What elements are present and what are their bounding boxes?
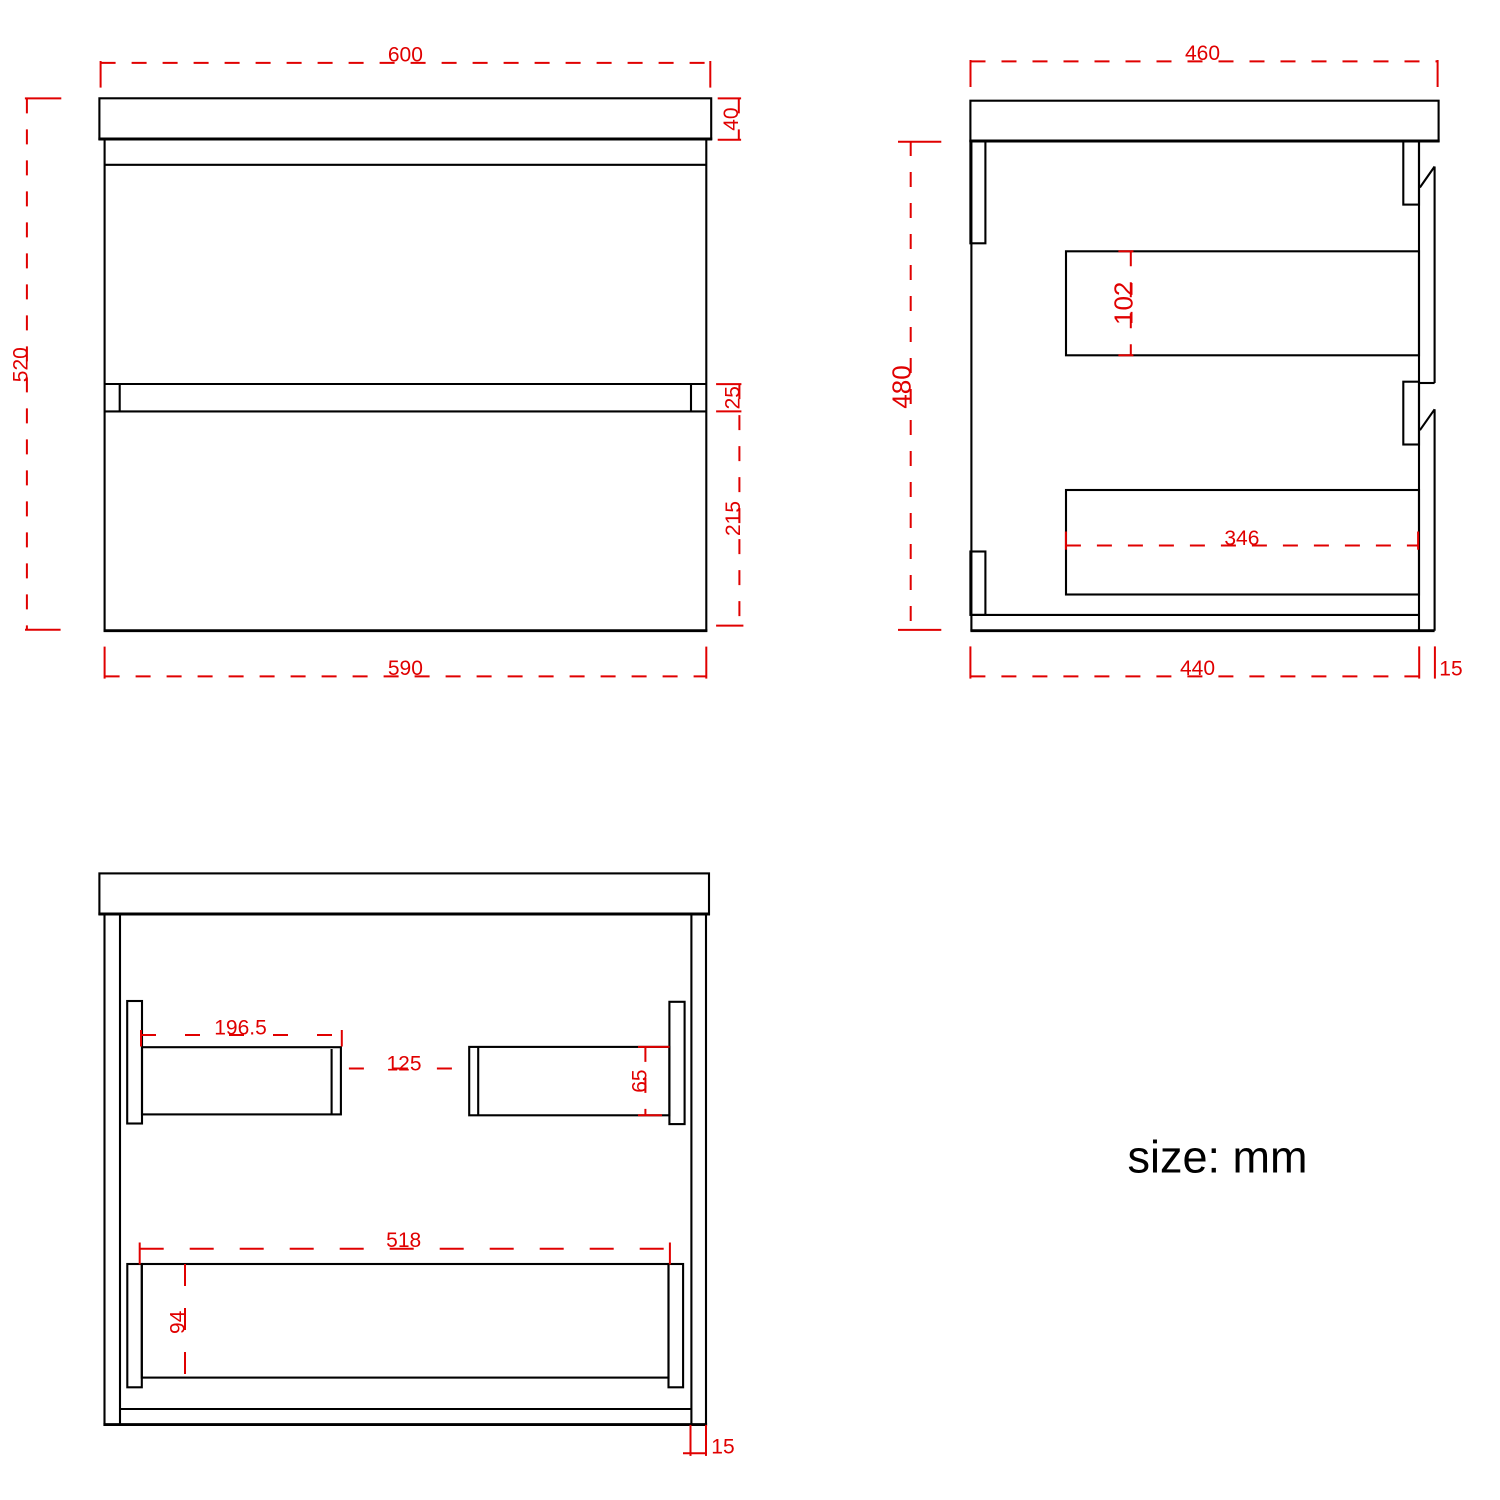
svg-text:102: 102 [1109,282,1139,325]
svg-text:518: 518 [386,1229,421,1252]
svg-text:346: 346 [1224,527,1259,550]
svg-text:215: 215 [722,501,745,536]
svg-text:25: 25 [722,386,745,409]
svg-text:40: 40 [720,107,743,130]
svg-text:196.5: 196.5 [214,1017,267,1040]
svg-text:125: 125 [386,1053,421,1076]
svg-text:94: 94 [167,1310,190,1334]
svg-text:520: 520 [10,347,33,382]
svg-text:65: 65 [629,1069,652,1092]
svg-text:460: 460 [1185,42,1220,65]
svg-text:440: 440 [1180,657,1215,680]
svg-text:size: mm: size: mm [1128,1132,1308,1183]
svg-text:600: 600 [388,43,423,66]
svg-text:590: 590 [388,657,423,680]
svg-text:15: 15 [711,1436,734,1459]
svg-text:15: 15 [1439,658,1462,681]
svg-text:480: 480 [887,365,917,408]
